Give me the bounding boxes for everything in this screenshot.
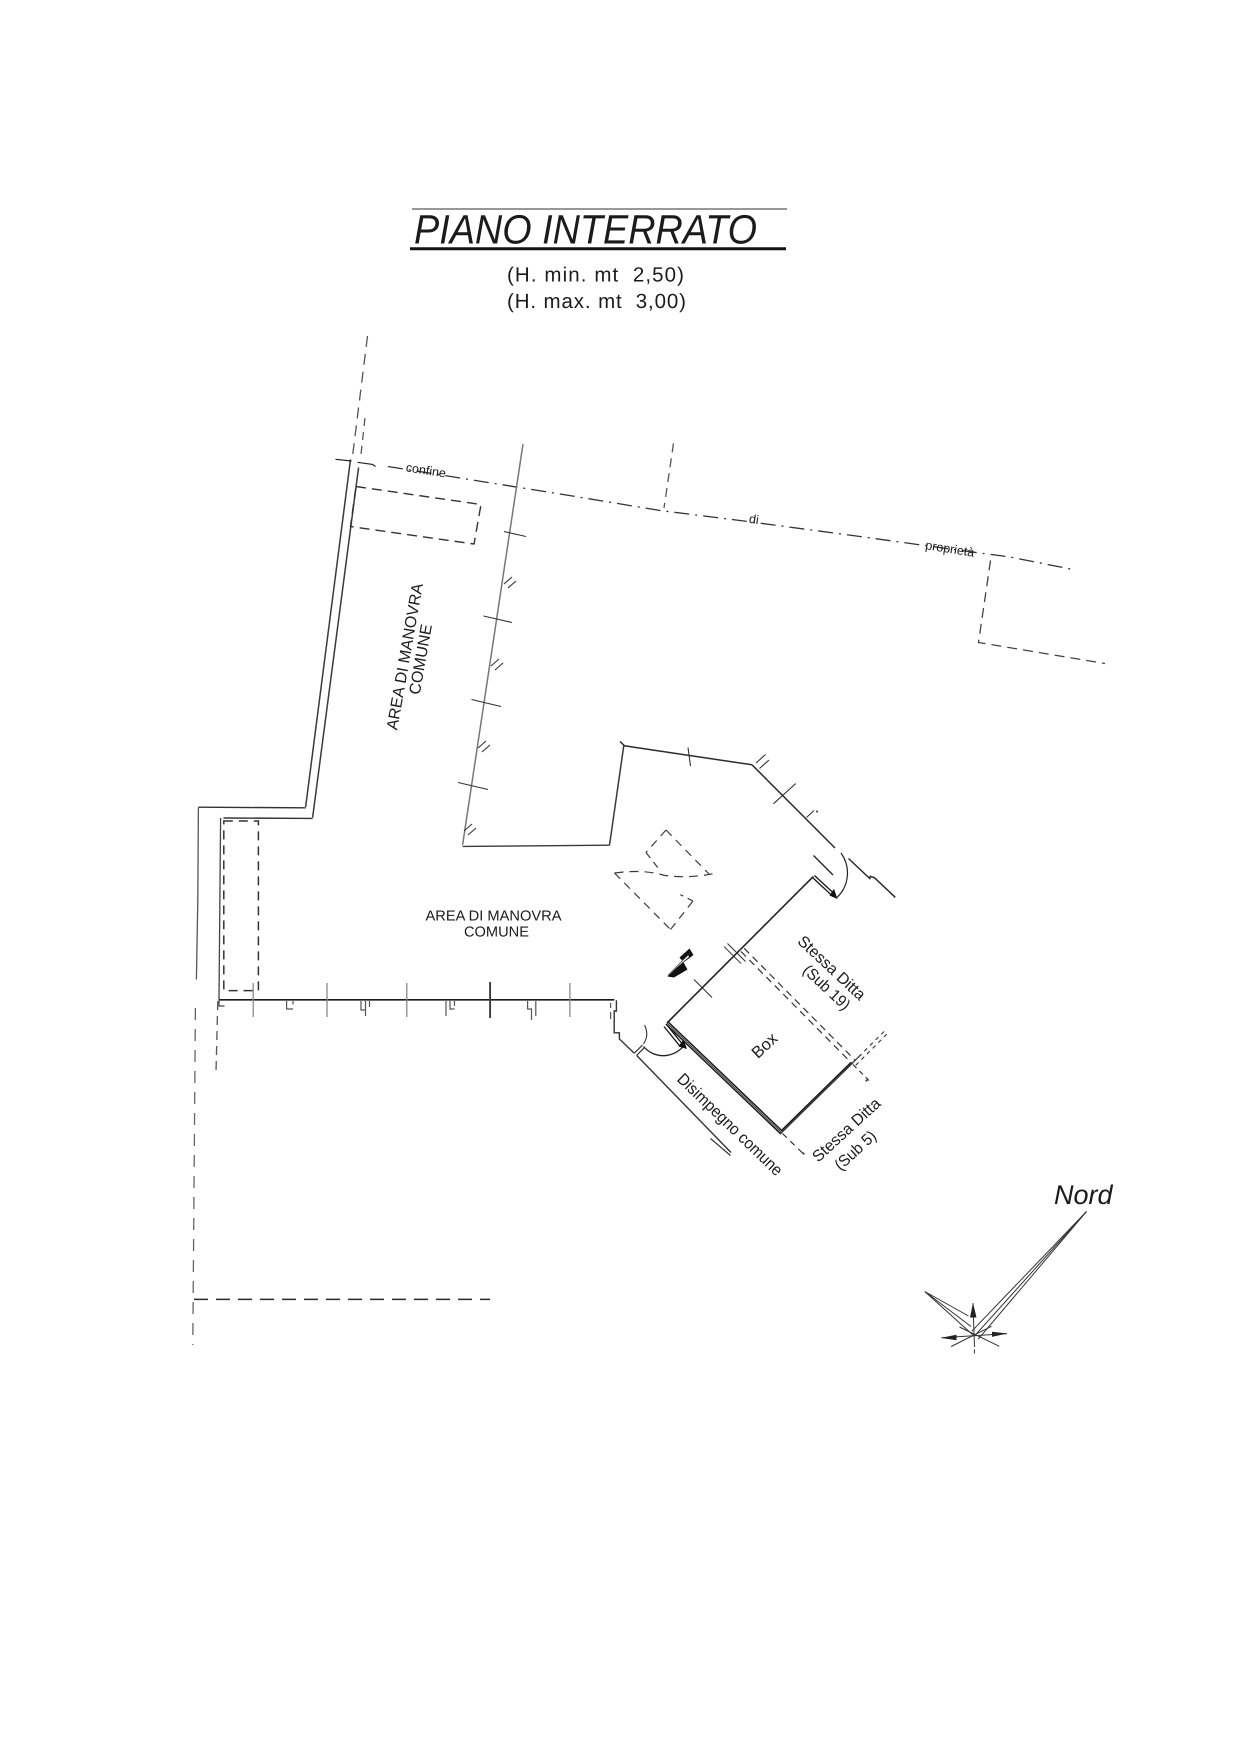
- svg-text:Box: Box: [748, 1029, 782, 1062]
- svg-text:PIANO INTERRATO: PIANO INTERRATO: [414, 207, 757, 253]
- svg-text:(H. max. mt 3,00): (H. max. mt 3,00): [507, 290, 686, 313]
- svg-text:confine: confine: [405, 460, 447, 480]
- svg-text:(H. min. mt 2,50): (H. min. mt 2,50): [507, 264, 684, 287]
- svg-text:di: di: [748, 512, 760, 527]
- svg-text:Disimpegno comune: Disimpegno comune: [673, 1070, 785, 1180]
- svg-text:COMUNE: COMUNE: [464, 925, 529, 941]
- svg-text:Nord: Nord: [1054, 1180, 1114, 1210]
- svg-text:AREA DI MANOVRA: AREA DI MANOVRA: [426, 909, 562, 925]
- svg-text:proprietà: proprietà: [924, 538, 975, 560]
